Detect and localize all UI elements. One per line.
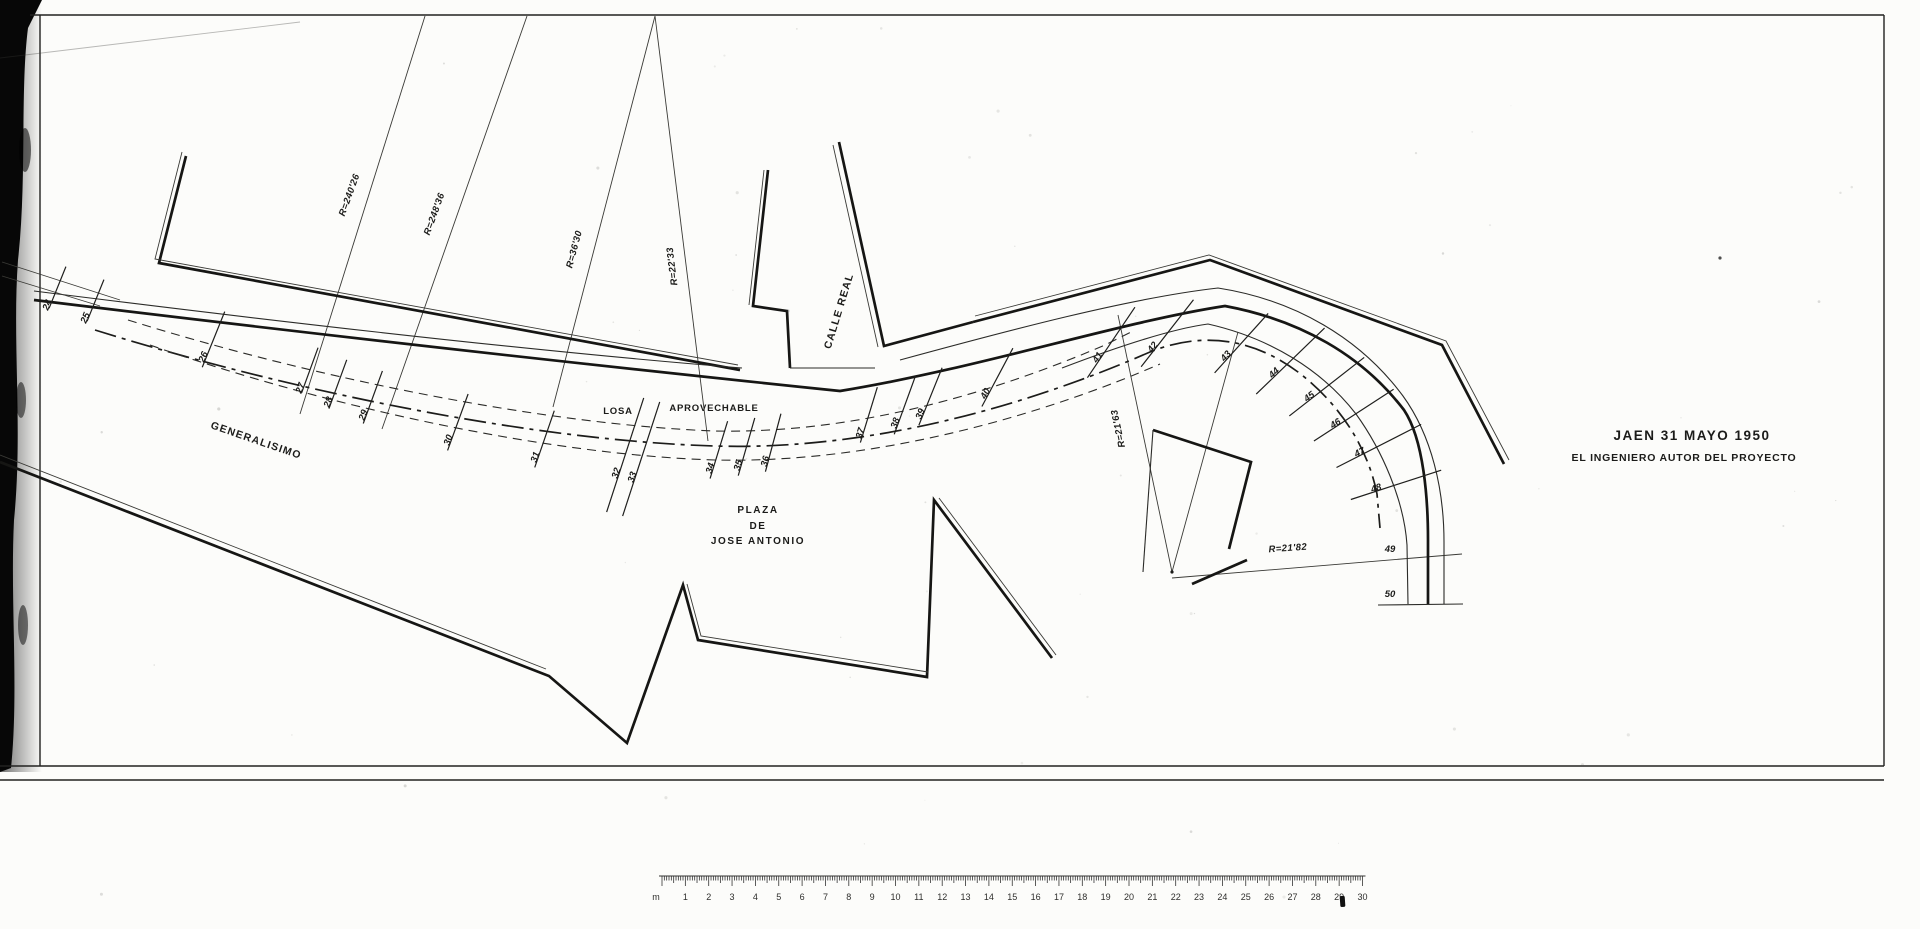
speckle	[153, 664, 155, 666]
graphic-scale-ruler: m123456789101112131415161718192021222324…	[652, 876, 1367, 902]
station-number: 49	[1384, 544, 1396, 555]
radius-label: R=21'82	[1268, 542, 1308, 556]
ruler-number: 18	[1077, 892, 1087, 902]
station-number: 46	[1327, 416, 1343, 432]
speckle	[1014, 246, 1015, 247]
speckle	[1255, 532, 1257, 534]
speckle	[796, 28, 798, 30]
speckle	[840, 637, 841, 638]
road-end-bar	[1378, 604, 1463, 605]
speckle	[909, 415, 911, 417]
speckle	[101, 431, 103, 433]
label-losa: LOSA	[603, 406, 633, 417]
scan-edge-artifact	[0, 0, 42, 772]
speckle	[100, 893, 103, 896]
ruler-number: 2	[706, 892, 711, 902]
ruler-number: 11	[914, 892, 923, 902]
speckle	[732, 290, 733, 291]
radius-label: R=22'33	[665, 246, 681, 286]
ruler-number: 10	[890, 892, 900, 902]
ruler-number: 28	[1311, 892, 1321, 902]
station-number: 44	[1266, 365, 1282, 381]
curve-centre-point	[1170, 570, 1173, 573]
ruler-number: 6	[800, 892, 805, 902]
speckle	[968, 156, 971, 159]
speckle	[714, 65, 716, 67]
station-tick	[1289, 357, 1364, 415]
speckle	[1510, 105, 1511, 106]
speckle	[1190, 830, 1193, 833]
speckle	[1839, 192, 1841, 194]
station-number: 37	[854, 426, 868, 440]
station-number: 32	[610, 466, 624, 480]
ruler-unit-label: m	[652, 892, 660, 902]
speckle	[1338, 843, 1339, 844]
station-tick	[1087, 307, 1135, 377]
station-number: 36	[759, 454, 773, 468]
speckle	[1395, 509, 1398, 512]
speckle	[586, 381, 588, 383]
station-number: 43	[1218, 348, 1234, 364]
speckle	[679, 362, 680, 363]
ruler-number: 1	[683, 892, 688, 902]
ruler-number: 12	[937, 892, 947, 902]
speckle	[1489, 224, 1491, 226]
speckle	[639, 330, 640, 331]
station-tick	[1256, 328, 1324, 394]
speckle	[1415, 152, 1417, 154]
speckle	[1080, 594, 1081, 595]
radius-lines-centre	[1118, 315, 1462, 578]
station-tick	[1336, 424, 1421, 467]
radius-label: R=240'26	[337, 172, 363, 218]
ruler-number: 23	[1194, 892, 1204, 902]
speckle	[1207, 354, 1209, 356]
station-tick	[1351, 470, 1441, 499]
radius-labels: R=240'26R=248'36R=36'30R=22'33R=21'63R=2…	[337, 172, 1308, 555]
ruler-number: 26	[1264, 892, 1274, 902]
speckle	[997, 110, 1000, 113]
ruler-number: 14	[984, 892, 994, 902]
speckle	[291, 734, 293, 736]
ruler-number: 8	[846, 892, 851, 902]
speckle	[723, 54, 725, 56]
speckle	[664, 796, 667, 799]
station-number: 48	[1369, 482, 1384, 496]
speckle	[1120, 474, 1122, 476]
ruler-number: 15	[1007, 892, 1017, 902]
speckle	[1282, 895, 1285, 898]
title-author: EL INGENIERO AUTOR DEL PROYECTO	[1572, 452, 1797, 464]
speckle	[448, 316, 451, 319]
scanned-plan-sheet: 2425262728293031323334353637383940414243…	[0, 0, 1920, 929]
speckle	[876, 309, 877, 310]
speckle	[926, 590, 928, 592]
speckle	[849, 677, 850, 678]
station-number: 50	[1385, 589, 1396, 600]
ruler-number: 9	[870, 892, 875, 902]
speckle	[924, 501, 926, 503]
speckle	[735, 254, 737, 256]
speckle	[1453, 727, 1456, 730]
station-tick	[1215, 313, 1269, 372]
speckle	[612, 321, 614, 323]
speckle	[924, 800, 925, 801]
speckle	[880, 27, 883, 30]
speckle	[217, 407, 220, 410]
ruler-number: 17	[1054, 892, 1064, 902]
speckle	[1135, 315, 1137, 317]
speckle	[1680, 417, 1682, 419]
station-number: 45	[1301, 389, 1317, 405]
speckle	[625, 562, 626, 563]
speckle	[736, 191, 739, 194]
speckle	[59, 480, 62, 483]
station-number: 34	[704, 461, 718, 475]
speckle	[443, 63, 445, 65]
speckle	[1538, 488, 1539, 489]
station-tick	[1141, 300, 1193, 367]
ruler-number: 20	[1124, 892, 1134, 902]
sheet-frame	[0, 15, 1884, 780]
speckle	[1021, 762, 1024, 765]
speckle	[1794, 491, 1795, 492]
speckle	[398, 304, 399, 305]
ruler-number: 24	[1217, 892, 1227, 902]
speckle	[1194, 613, 1195, 614]
label-aprovechable: APROVECHABLE	[669, 403, 758, 414]
plan-drawing: 2425262728293031323334353637383940414243…	[0, 0, 1920, 929]
ruler-number: 22	[1171, 892, 1181, 902]
speckle	[1627, 733, 1630, 736]
ruler-number: 21	[1147, 892, 1157, 902]
radius-lines-top	[300, 16, 708, 441]
label-generalisimo: GENERALISIMO	[209, 419, 303, 461]
speckle	[1818, 300, 1821, 303]
label-calle-real: CALLE REAL	[822, 272, 856, 351]
building-edges	[0, 142, 1509, 743]
ruler-number: 19	[1101, 892, 1111, 902]
ruler-number: 27	[1287, 892, 1297, 902]
speckle	[596, 166, 599, 169]
label-plaza-de: DE	[749, 521, 766, 532]
ink-dot	[1718, 256, 1721, 259]
radius-label: R=36'30	[564, 229, 585, 269]
speckle	[1835, 500, 1836, 501]
proposed-axis	[95, 320, 1380, 528]
ruler-number: 16	[1031, 892, 1041, 902]
radius-label: R=248'36	[422, 191, 448, 237]
ink-blot-mark	[1340, 896, 1346, 907]
speckle	[1190, 612, 1193, 615]
label-plaza: PLAZA	[737, 505, 778, 516]
ruler-number: 4	[753, 892, 758, 902]
speckle	[1442, 252, 1444, 254]
speckle	[1471, 131, 1473, 133]
speckle	[1029, 134, 1032, 137]
speckle	[587, 362, 589, 364]
speckle	[404, 784, 407, 787]
label-jose-antonio: JOSE ANTONIO	[711, 536, 805, 547]
ruler-number: 3	[730, 892, 735, 902]
ruler-number: 13	[961, 892, 971, 902]
speckle	[1086, 696, 1088, 698]
speckle	[898, 406, 901, 409]
ruler-number: 5	[776, 892, 781, 902]
speckle	[864, 843, 865, 844]
ruler-number: 25	[1241, 892, 1251, 902]
speckle	[787, 309, 790, 312]
station-number: 33	[626, 470, 640, 484]
speckle	[745, 458, 747, 460]
radius-label: R=21'63	[1109, 408, 1128, 448]
speckle	[1782, 525, 1784, 527]
ruler-number: 7	[823, 892, 828, 902]
speckle	[1851, 186, 1854, 189]
speckle	[1581, 763, 1584, 766]
ruler-number: 30	[1357, 892, 1367, 902]
station-tick	[623, 402, 660, 516]
title-date: JAEN 31 MAYO 1950	[1613, 428, 1770, 443]
